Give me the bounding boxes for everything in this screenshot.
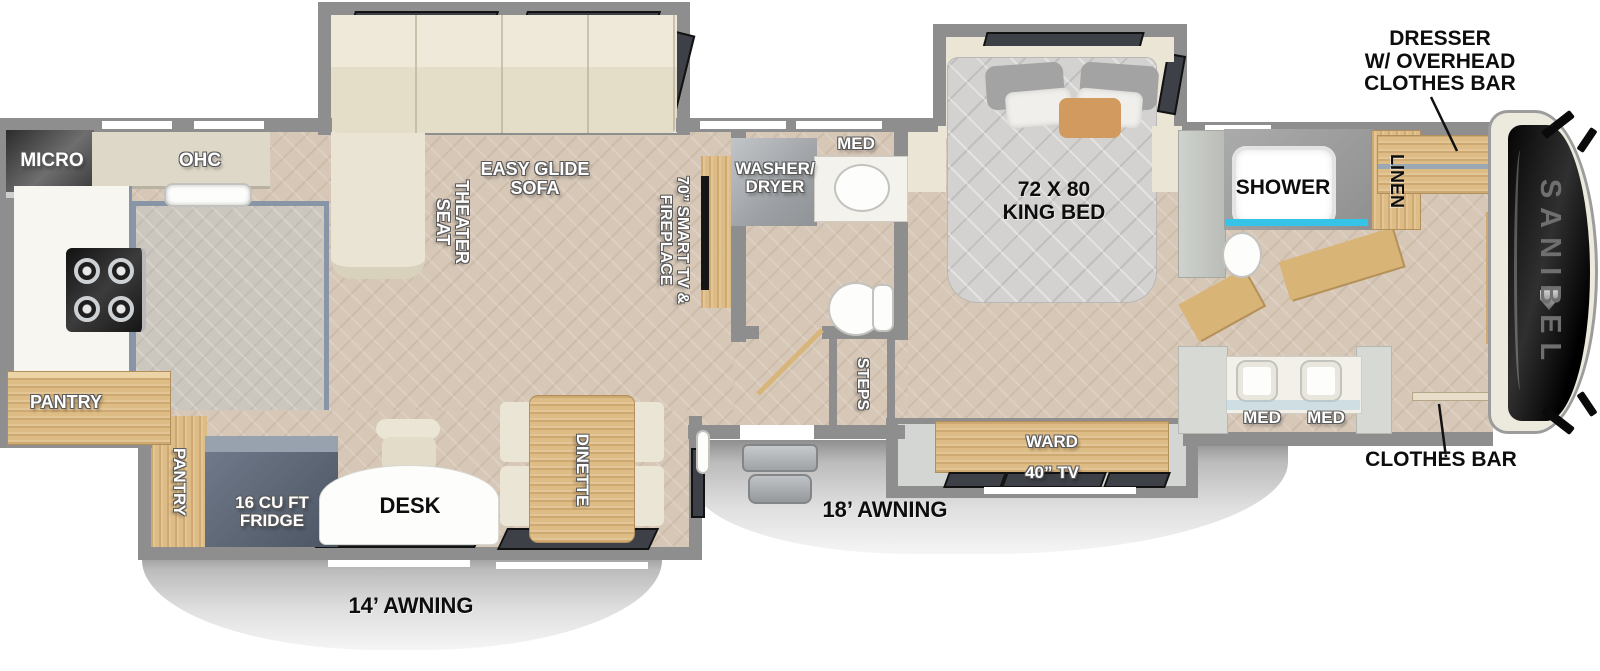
window-slit bbox=[984, 487, 1136, 494]
label-awning-18: 18’ AWNING bbox=[800, 496, 970, 524]
label-steps: STEPS bbox=[853, 339, 871, 429]
dinette-chair bbox=[630, 466, 664, 526]
clothes-bar bbox=[1412, 392, 1494, 401]
sofa-seat bbox=[331, 67, 677, 133]
bath-sink bbox=[834, 164, 890, 212]
entry-door-opening bbox=[740, 425, 814, 439]
label-brand: SANIBEL bbox=[1532, 148, 1566, 400]
burner-icon bbox=[74, 296, 100, 322]
label-ward: WARD bbox=[1012, 430, 1092, 454]
label-40-tv: 40” TV bbox=[1012, 462, 1092, 484]
dinette-chair bbox=[500, 466, 534, 526]
toilet-tank bbox=[872, 284, 894, 332]
label-dinette: DINETTE bbox=[572, 410, 592, 530]
dresser-note-line: CLOTHES BAR bbox=[1364, 73, 1516, 96]
kitchen-sink bbox=[164, 183, 252, 207]
window-slit bbox=[700, 121, 786, 129]
window-slit bbox=[496, 562, 648, 569]
floorplan-canvas: MICRO OHC PANTRY THEATER SEAT EASY GLIDE… bbox=[0, 0, 1600, 671]
steps-rail bbox=[829, 339, 837, 427]
window-slit bbox=[194, 121, 264, 129]
cap-highlight bbox=[1514, 150, 1527, 390]
window-slit bbox=[796, 121, 882, 129]
desk-chair-back bbox=[376, 419, 440, 439]
label-awning-14: 14’ AWNING bbox=[326, 592, 496, 620]
label-med-half-bath: MED bbox=[826, 132, 886, 156]
label-washer-dryer: WASHER/ DRYER bbox=[730, 156, 820, 200]
label-med-left: MED bbox=[1232, 406, 1292, 430]
bath-wall-bottom bbox=[731, 326, 759, 339]
cap-accent-stripe bbox=[1576, 127, 1597, 153]
dresser-note-line: DRESSER bbox=[1389, 28, 1491, 51]
vanity-end-panel bbox=[1178, 346, 1228, 434]
steps-rail bbox=[887, 339, 895, 427]
cap-accent-stripe bbox=[1576, 391, 1597, 417]
slide-window-icon bbox=[943, 472, 1007, 488]
sink-bowl bbox=[1222, 232, 1262, 278]
burner-icon bbox=[74, 258, 100, 284]
shower-glass bbox=[1226, 219, 1368, 226]
tv-screen-icon bbox=[701, 176, 709, 290]
label-shower: SHOWER bbox=[1230, 174, 1336, 202]
sofa-chaise bbox=[331, 133, 425, 279]
accent-pillow bbox=[1059, 98, 1121, 138]
label-linen: LINEN bbox=[1386, 136, 1406, 226]
label-pantry-slide: PANTRY bbox=[169, 422, 189, 542]
nightstand bbox=[906, 126, 946, 192]
label-fridge: 16 CU FT FRIDGE bbox=[214, 490, 330, 534]
entry-step bbox=[742, 444, 818, 472]
cooktop bbox=[66, 248, 146, 332]
window-slit bbox=[328, 560, 470, 567]
label-king-bed: 72 X 80 KING BED bbox=[996, 174, 1112, 230]
bath-closet bbox=[1178, 130, 1226, 278]
label-micro: MICRO bbox=[12, 148, 92, 174]
dinette-chair bbox=[500, 402, 534, 462]
dresser-note-line: W/ OVERHEAD bbox=[1365, 51, 1516, 74]
label-desk: DESK bbox=[350, 492, 470, 520]
vanity-sink bbox=[1236, 360, 1278, 402]
bottom-wall-right bbox=[1183, 432, 1493, 446]
sofa-back bbox=[331, 15, 677, 67]
label-clothes-bar-note: CLOTHES BAR bbox=[1356, 446, 1526, 474]
burner-icon bbox=[108, 258, 134, 284]
label-ohc: OHC bbox=[150, 148, 250, 174]
label-dresser-note: DRESSER W/ OVERHEAD CLOTHES BAR bbox=[1340, 26, 1540, 98]
label-med-right: MED bbox=[1296, 406, 1356, 430]
label-easy-glide-sofa: EASY GLIDE SOFA bbox=[470, 156, 600, 202]
slide-window-icon bbox=[1103, 472, 1171, 488]
burner-icon bbox=[108, 296, 134, 322]
entry-grab-handle bbox=[696, 430, 710, 474]
label-smart-tv-fireplace: 70” SMART TV & FIREPLACE bbox=[653, 165, 695, 315]
label-theater-seat: THEATER SEAT bbox=[430, 172, 474, 272]
dinette-chair bbox=[630, 402, 664, 462]
vanity-sink bbox=[1300, 360, 1342, 402]
label-pantry-kitchen: PANTRY bbox=[18, 390, 114, 416]
window-slit bbox=[102, 121, 172, 129]
